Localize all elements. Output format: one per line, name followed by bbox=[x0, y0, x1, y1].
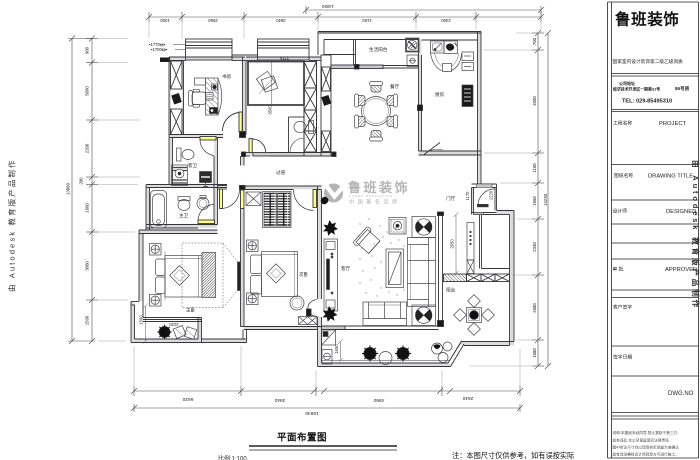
svg-text:1220: 1220 bbox=[489, 190, 494, 200]
svg-text:1080: 1080 bbox=[532, 348, 537, 358]
svg-text:5090: 5090 bbox=[85, 86, 90, 96]
svg-text:14230: 14230 bbox=[543, 193, 548, 206]
svg-text:次卧: 次卧 bbox=[299, 271, 309, 278]
svg-text:2330: 2330 bbox=[532, 242, 537, 252]
svg-text:书房: 书房 bbox=[222, 73, 232, 80]
svg-text:门厅: 门厅 bbox=[446, 195, 456, 202]
svg-text:如有改动需经设计师同意方可进行施工。: 如有改动需经设计师同意方可进行施工。 bbox=[613, 452, 679, 457]
svg-text:注：本图尺寸仅供参考，如有误按实际: 注：本图尺寸仅供参考，如有误按实际 bbox=[452, 451, 574, 460]
svg-text:鲁班装饰: 鲁班装饰 bbox=[615, 10, 679, 29]
svg-text:3940: 3940 bbox=[276, 18, 286, 23]
svg-text:审 批: 审 批 bbox=[613, 266, 624, 273]
svg-text:4900: 4900 bbox=[532, 96, 537, 106]
svg-text:2540: 2540 bbox=[462, 395, 473, 401]
svg-text:经济技术开发区一期第31号: 经济技术开发区一期第31号 bbox=[612, 87, 660, 92]
svg-text:DRAWING TITLE: DRAWING TITLE bbox=[648, 174, 693, 180]
svg-text:2230: 2230 bbox=[169, 322, 179, 327]
svg-text:客卫: 客卫 bbox=[188, 162, 198, 169]
svg-text:700: 700 bbox=[532, 37, 537, 45]
svg-text:图中所注尺寸均以现场实际测量为准确认: 图中所注尺寸均以现场实际测量为准确认 bbox=[613, 445, 680, 450]
svg-text:生活阳台: 生活阳台 bbox=[369, 46, 388, 53]
svg-text:2680: 2680 bbox=[532, 303, 537, 313]
svg-text:如有违反,本公司保留追究法律责任,: 如有违反,本公司保留追究法律责任, bbox=[613, 438, 670, 443]
svg-text:PROJECT: PROJECT bbox=[659, 121, 687, 127]
svg-text:1560: 1560 bbox=[532, 196, 537, 206]
svg-text:14050: 14050 bbox=[321, 4, 334, 9]
svg-text:中国著名品牌: 中国著名品牌 bbox=[349, 198, 401, 206]
svg-text:2300: 2300 bbox=[441, 18, 451, 23]
svg-text:200: 200 bbox=[79, 177, 84, 185]
svg-text:2650: 2650 bbox=[450, 239, 455, 249]
svg-text:6620: 6620 bbox=[182, 396, 193, 402]
svg-text:客户签字: 客户签字 bbox=[613, 304, 632, 311]
svg-text:由 Autodesk 教育版产品制作: 由 Autodesk 教育版产品制作 bbox=[8, 158, 17, 292]
svg-text:1660: 1660 bbox=[85, 203, 90, 213]
svg-text:3500: 3500 bbox=[268, 105, 273, 115]
svg-text:15840: 15840 bbox=[305, 410, 319, 416]
svg-text:1590: 1590 bbox=[85, 315, 90, 325]
svg-text:1650: 1650 bbox=[334, 344, 339, 354]
svg-text:餐厅: 餐厅 bbox=[390, 83, 400, 90]
svg-text:设计师: 设计师 bbox=[613, 208, 628, 215]
svg-text:签字日期: 签字日期 bbox=[613, 354, 632, 361]
svg-text:1050: 1050 bbox=[160, 18, 170, 23]
svg-text:过道: 过道 bbox=[276, 169, 286, 176]
svg-text:由 Autodesk 教育版产品制作: 由 Autodesk 教育版产品制作 bbox=[691, 160, 700, 310]
svg-text:TEL: 029-85495310: TEL: 029-85495310 bbox=[622, 99, 672, 105]
svg-text:4150: 4150 bbox=[362, 18, 372, 23]
svg-text:2550: 2550 bbox=[208, 18, 218, 23]
svg-text:1170: 1170 bbox=[465, 191, 470, 201]
svg-text:客厅: 客厅 bbox=[341, 265, 351, 272]
svg-text:86号房: 86号房 bbox=[675, 85, 690, 92]
svg-text:说明:本图纸未经同意,禁止复制于第三方,: 说明:本图纸未经同意,禁止复制于第三方, bbox=[613, 430, 679, 435]
svg-text:图纸名称: 图纸名称 bbox=[614, 172, 633, 179]
svg-text:DWG.NO: DWG.NO bbox=[668, 391, 694, 397]
svg-text:4950: 4950 bbox=[373, 397, 384, 403]
svg-text:主卧: 主卧 bbox=[186, 307, 196, 314]
svg-text:阳台: 阳台 bbox=[446, 287, 456, 294]
svg-text:鲁班装饰: 鲁班装饰 bbox=[348, 180, 410, 195]
svg-text:1160: 1160 bbox=[532, 163, 537, 173]
svg-text:1590: 1590 bbox=[139, 315, 144, 325]
svg-text:3060: 3060 bbox=[85, 261, 90, 271]
svg-text:主卫: 主卫 bbox=[179, 212, 189, 218]
svg-text:13860: 13860 bbox=[66, 182, 71, 195]
svg-text:Luban decoration: Luban decoration bbox=[349, 194, 393, 198]
svg-text:公司地址: 公司地址 bbox=[619, 80, 635, 86]
svg-text:2200: 2200 bbox=[85, 143, 90, 153]
svg-text:3940: 3940 bbox=[274, 397, 285, 403]
svg-text:3750: 3750 bbox=[279, 56, 289, 61]
svg-text:平面布置图: 平面布置图 bbox=[277, 432, 327, 444]
svg-text:厨房: 厨房 bbox=[435, 91, 445, 98]
svg-text:▪1700㎜▪: ▪1700㎜▪ bbox=[151, 47, 168, 52]
svg-text:工程名称: 工程名称 bbox=[613, 120, 632, 127]
svg-text:900: 900 bbox=[85, 46, 90, 54]
svg-text:国家室内设计装饰第二级乙级资质: 国家室内设计装饰第二级乙级资质 bbox=[613, 58, 684, 65]
